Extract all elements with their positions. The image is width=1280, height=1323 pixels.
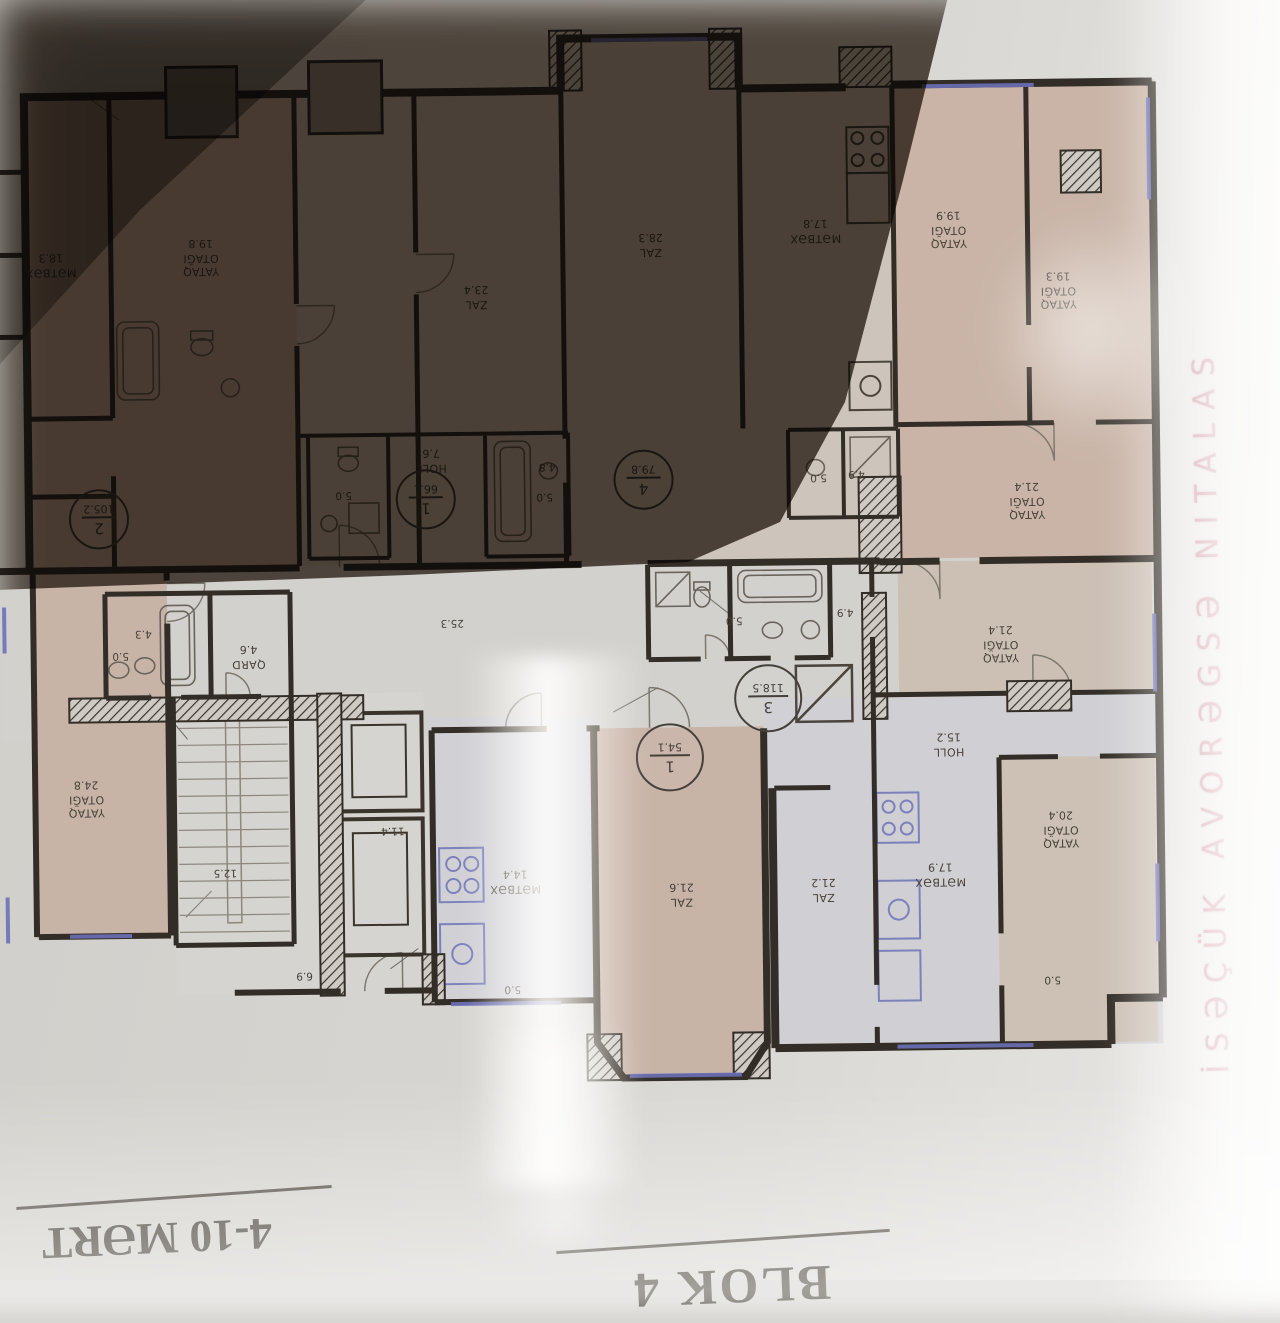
room-name: YATAQ OTAĞI [998, 494, 1056, 521]
divider [650, 754, 690, 756]
room-name: ZAL [653, 894, 711, 908]
photo-of-floorplan-page: MƏTBƏX18.3 YATAQ OTAĞI19.8 ZAL23.4 ZAL28… [0, 0, 1280, 1280]
room-label: YATAQ OTAĞI24.8 [57, 778, 115, 819]
room-area: 19.9 [919, 209, 977, 223]
divider [626, 477, 661, 479]
apartment-area: 66.1 [413, 483, 438, 494]
area-label: 5.0 [112, 650, 129, 662]
block-title: BLOK 4 [565, 1251, 897, 1323]
room-label: YATAQ OTAĞI21.4 [998, 480, 1056, 521]
room-area: 18.3 [22, 251, 80, 265]
apartment-area: 118.5 [752, 682, 784, 693]
room-name: YATAQ OTAĞI [1032, 822, 1090, 849]
room-area: 21.2 [794, 876, 852, 890]
room-name: YATAQ OTAĞI [919, 223, 977, 250]
room-label: ZAL28.3 [621, 231, 679, 259]
apartment-area: 105.2 [83, 503, 115, 514]
room-area: 23.4 [447, 283, 505, 297]
room-label: MƏTBƏX18.3 [22, 251, 80, 279]
room-area: 14.4 [486, 867, 544, 881]
area-label: 4.9 [837, 606, 854, 618]
room-label: MƏTBƏX14.4 [486, 867, 544, 895]
divider [408, 496, 443, 498]
area-label: 25.3 [441, 617, 465, 629]
room-area: 21.4 [971, 623, 1029, 637]
room-label: HOLL15.2 [920, 730, 978, 758]
apartment-area: 79.8 [631, 464, 656, 475]
area-label: 5.0 [726, 615, 743, 627]
divider [82, 516, 117, 518]
room-name: HOLL [920, 744, 978, 758]
room-label: MƏTBƏX17.9 [911, 860, 969, 888]
room-name: YATAQ OTAĞI [172, 251, 230, 278]
room-area: 4.6 [220, 643, 278, 657]
area-label: 5.0 [504, 983, 521, 995]
room-area: 21.4 [998, 480, 1056, 494]
room-label: YATAQ OTAĞI19.3 [1029, 269, 1087, 310]
room-name: YATAQ OTAĞI [57, 792, 115, 819]
area-label: 5.0 [536, 491, 553, 503]
room-area: 17.9 [911, 860, 969, 874]
room-area: 15.2 [920, 730, 978, 744]
room-area: 19.8 [172, 237, 230, 251]
floorplan: MƏTBƏX18.3 YATAQ OTAĞI19.8 ZAL23.4 ZAL28… [0, 0, 1280, 1288]
room-name: YATAQ OTAĞI [1029, 283, 1087, 310]
room-area: 24.8 [57, 778, 115, 792]
room-name: MƏTBƏX [787, 231, 845, 245]
area-label: 4.9 [848, 468, 865, 480]
apartment-number: 1 [665, 758, 675, 773]
room-name: MƏTBƏX [911, 874, 969, 888]
room-label: ZAL21.6 [652, 880, 710, 908]
room-name: MƏTBƏX [486, 881, 544, 895]
room-name: YATAQ OTAĞI [971, 637, 1029, 664]
area-label: 5.0 [1044, 974, 1061, 986]
room-name: ZAL [622, 245, 680, 259]
divider [748, 695, 788, 697]
room-area: 20.4 [1032, 808, 1090, 822]
room-label: QARD4.6 [220, 643, 278, 671]
room-area: 28.3 [621, 231, 679, 245]
room-label: YATAQ OTAĞI19.8 [172, 237, 230, 278]
apartment-number: 4 [639, 480, 649, 495]
apartment-number: 1 [421, 500, 431, 515]
floorplan-drawing [0, 0, 1280, 1288]
room-name: QARD [220, 657, 278, 671]
room-label: YATAQ OTAĞI19.9 [919, 209, 977, 250]
room-label: MƏTBƏX17.8 [786, 217, 844, 245]
room-label: ZAL21.2 [794, 876, 852, 904]
room-area: 17.8 [786, 217, 844, 231]
room-area: 21.6 [652, 880, 710, 894]
apartment-number: 2 [94, 520, 104, 535]
room-area: 19.3 [1029, 269, 1087, 283]
area-label: 5.0 [810, 471, 827, 483]
area-label: 4.3 [135, 628, 152, 640]
apartment-number: 3 [763, 699, 773, 714]
apartment-area: 54.1 [657, 742, 682, 753]
room-label: YATAQ OTAĞI20.4 [1032, 808, 1090, 849]
area-label: 12.5 [214, 867, 238, 879]
room-name: MƏTBƏX [22, 265, 80, 279]
area-label: 4.8 [539, 461, 556, 473]
area-label: 5.0 [335, 489, 352, 501]
room-label: YATAQ OTAĞI21.4 [971, 623, 1029, 664]
room-name: ZAL [447, 297, 505, 311]
room-label: ZAL23.4 [447, 283, 505, 311]
area-label: 11.4 [381, 825, 405, 837]
room-name: ZAL [795, 890, 853, 904]
room-area: 7.6 [402, 446, 460, 460]
area-label: 6.9 [296, 970, 313, 982]
